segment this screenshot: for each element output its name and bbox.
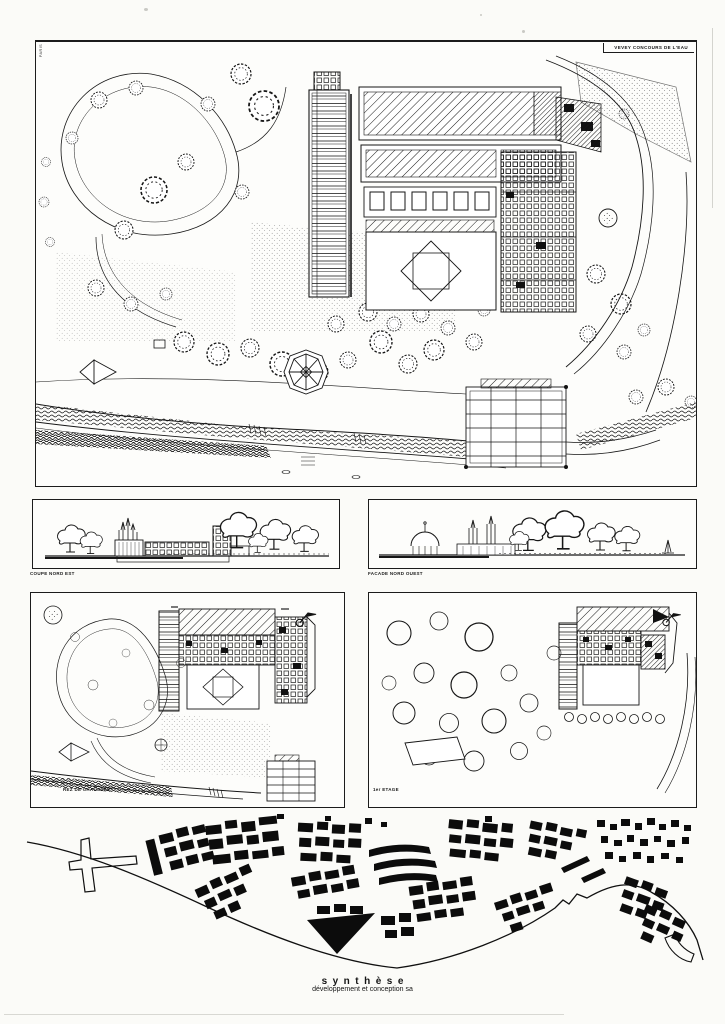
plan-left-drawing bbox=[31, 593, 344, 807]
scan-edge-line bbox=[712, 28, 713, 208]
elevation-left-drawing bbox=[33, 500, 339, 568]
scan-speck bbox=[144, 8, 148, 11]
pier-plan bbox=[267, 755, 315, 801]
elevation-right-caption: FACADE NORD OUEST bbox=[368, 571, 423, 576]
dome-pavilion bbox=[411, 522, 439, 555]
scan-speck bbox=[522, 30, 525, 33]
octagonal-kiosk-icon bbox=[284, 350, 328, 394]
church-spires bbox=[115, 518, 143, 556]
stamp-vertical-text: PARIS bbox=[38, 44, 43, 57]
pier bbox=[464, 379, 568, 469]
elevation-right-drawing bbox=[369, 500, 696, 568]
building-footprint bbox=[159, 609, 315, 711]
elevation-left-caption: COUPE NORD EST bbox=[30, 571, 75, 576]
figure-ground-map bbox=[25, 812, 710, 975]
footer: synthèse développement et conception sa bbox=[0, 976, 725, 993]
plan-left-panel: REZ DE CHAUSSEE bbox=[30, 592, 345, 808]
firm-subtitle: développement et conception sa bbox=[0, 986, 725, 993]
drawing-sheet: PARIS VEVEY CONCOURS DE L'EAU bbox=[0, 0, 725, 1024]
tree-row bbox=[565, 713, 665, 724]
plan-right-drawing bbox=[369, 593, 696, 807]
building-upper-floor bbox=[559, 607, 677, 709]
site-plan-panel: PARIS VEVEY CONCOURS DE L'EAU bbox=[35, 40, 697, 487]
elevation-left-panel bbox=[32, 499, 340, 569]
plan-left-caption: REZ DE CHAUSSEE bbox=[63, 787, 110, 792]
sailboat-icon bbox=[662, 540, 674, 553]
city-blocks bbox=[144, 814, 691, 954]
site-plan-drawing bbox=[36, 42, 696, 485]
sheet-title: VEVEY CONCOURS DE L'EAU bbox=[603, 43, 694, 53]
coastline bbox=[27, 842, 703, 968]
harbor-mole bbox=[69, 838, 137, 892]
plan-right-panel: 1er ETAGE bbox=[368, 592, 697, 808]
plan-right-caption: 1er ETAGE bbox=[373, 787, 399, 792]
scan-speck bbox=[480, 14, 482, 16]
elevation-right-panel bbox=[368, 499, 697, 569]
scan-edge-line bbox=[4, 1014, 564, 1015]
